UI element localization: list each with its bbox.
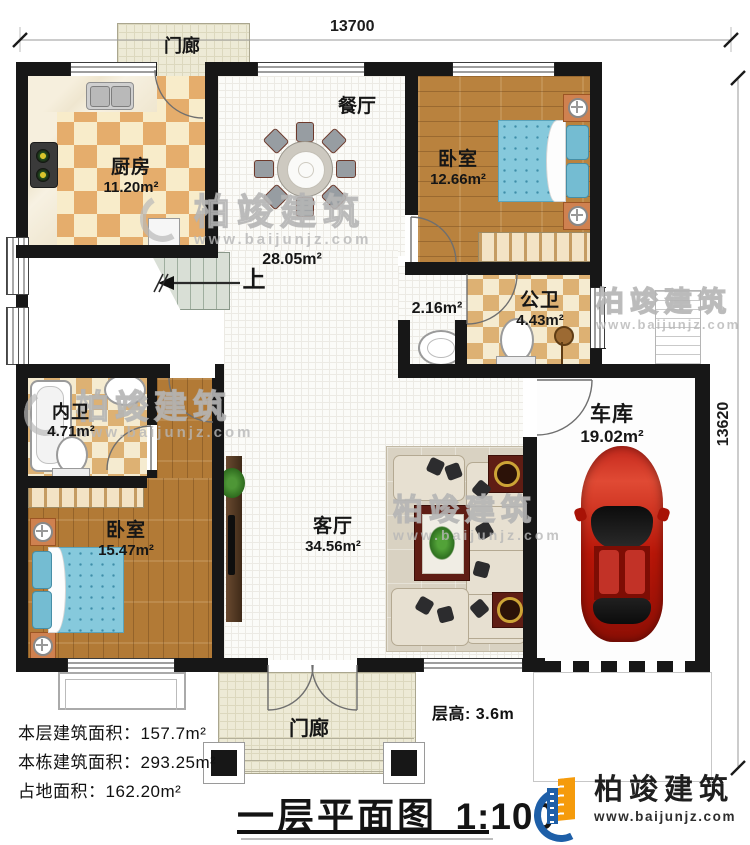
brand-name: 柏竣建筑 bbox=[594, 776, 736, 805]
dimension-right: 13620 bbox=[715, 388, 733, 460]
room-area-small-hall: 2.16m² bbox=[387, 300, 487, 318]
room-label-public-bath: 公卫4.43m² bbox=[490, 290, 590, 329]
stat-building-area: 本栋建筑面积：293.25m² bbox=[18, 748, 216, 773]
room-label-bedroom-top: 卧室12.66m² bbox=[408, 149, 508, 188]
room-label-dining: 餐厅 bbox=[307, 96, 407, 118]
floor-plan: 柏竣建筑 www.baijunjz.com 柏竣建筑 www.baijunjz.… bbox=[0, 0, 750, 845]
dimension-top: 13700 bbox=[330, 18, 375, 36]
brand-url: www.baijunjz.com bbox=[594, 809, 736, 824]
brand-logo: 柏竣建筑 www.baijunjz.com bbox=[534, 776, 736, 832]
room-label-inner-bath: 内卫4.71m² bbox=[21, 402, 121, 440]
brand-logo-icon bbox=[534, 776, 586, 832]
title-underline bbox=[237, 830, 489, 834]
floor-height: 层高: 3.6m bbox=[432, 700, 514, 724]
room-label-kitchen: 厨房11.20m² bbox=[81, 157, 181, 196]
room-label-garage: 车库19.02m² bbox=[562, 403, 662, 447]
title-underline-thin bbox=[241, 838, 493, 840]
room-label-porch-bottom: 门廊 bbox=[259, 718, 359, 741]
room-label-living: 客厅34.56m² bbox=[283, 516, 383, 555]
room-label-porch-top: 门廊 bbox=[132, 36, 232, 57]
room-label-bedroom-left: 卧室15.47m² bbox=[76, 520, 176, 559]
stat-land-area: 占地面积：162.20m² bbox=[18, 777, 181, 802]
stat-floor-area: 本层建筑面积：157.7m² bbox=[18, 719, 206, 744]
stairs-up-label: 上 bbox=[234, 266, 274, 292]
